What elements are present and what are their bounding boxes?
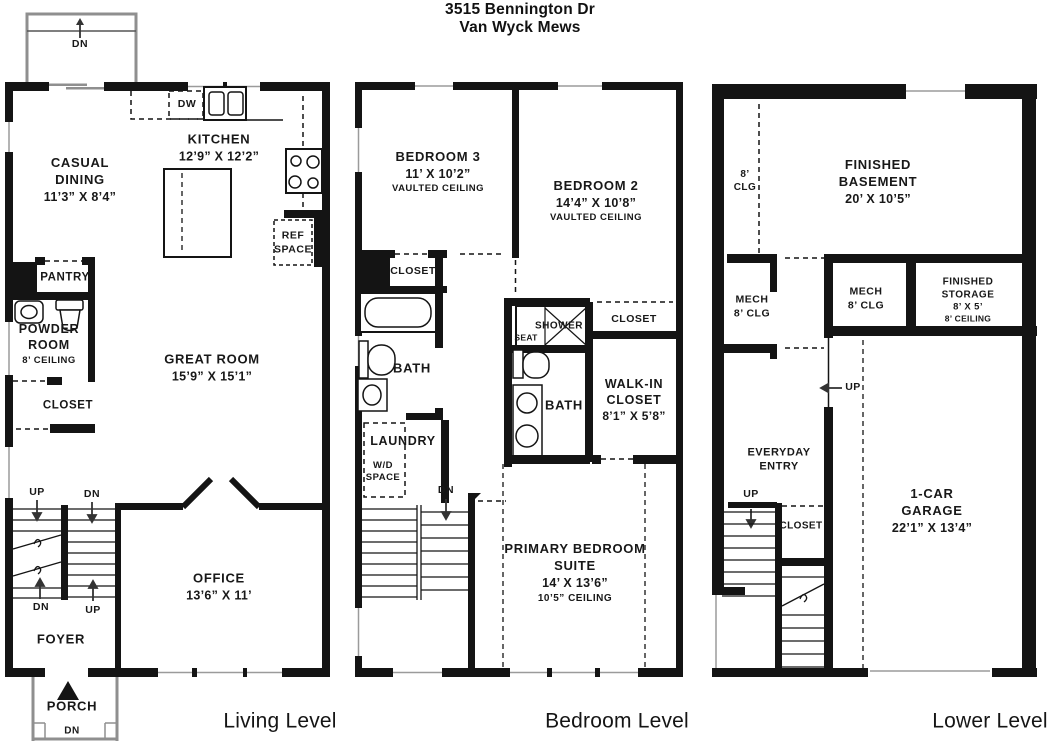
stair-up-label: UP	[743, 488, 759, 502]
dishwasher-label: DW	[178, 98, 197, 112]
room-label-finished-storage: FINISHED STORAGE 8’ X 5’ 8’ CEILING	[932, 275, 1004, 324]
room-label-everyday-entry: EVERYDAY ENTRY	[734, 446, 824, 475]
page-title-line2: Van Wyck Mews	[459, 18, 580, 38]
room-label-primary-suite: PRIMARY BEDROOM SUITE 14’ X 13’6” 10’5” …	[500, 541, 650, 605]
room-label-mech-left: MECH 8’ CLG	[734, 293, 770, 320]
room-label-casual-dining: CASUAL DINING 11’3” X 8’4”	[34, 155, 126, 205]
room-label-bedroom3: BEDROOM 3 11’ X 10’2” VAULTED CEILING	[392, 149, 484, 195]
caption-lower-level: Lower Level	[932, 707, 1047, 734]
hall-up-label: UP	[845, 381, 861, 395]
deck-dn-label: DN	[72, 38, 88, 52]
room-label-closet-bed2: CLOSET	[611, 313, 657, 327]
room-label-walk-in-closet: WALK-IN CLOSET 8’1” X 5’8”	[595, 376, 673, 424]
room-label-bedroom2: BEDROOM 2 14’4” X 10’8” VAULTED CEILING	[550, 178, 642, 224]
wd-space-label: W/D SPACE	[363, 459, 403, 485]
room-label-closet-bed3: CLOSET	[390, 265, 436, 279]
room-label-laundry: LAUNDRY	[370, 433, 436, 449]
porch-dn-label: DN	[64, 725, 79, 738]
room-label-office: OFFICE 13’6” X 11’	[186, 570, 252, 603]
caption-bedroom-level: Bedroom Level	[545, 707, 689, 734]
stair-up-label: UP	[29, 486, 45, 500]
stair-dn-label: DN	[33, 601, 49, 615]
room-label-kitchen: KITCHEN 12’9” X 12’2”	[179, 131, 259, 164]
room-label-mech-mid: MECH 8’ CLG	[848, 285, 884, 312]
stair-up-label: UP	[85, 604, 101, 618]
room-label-great-room: GREAT ROOM 15’9” X 15’1”	[164, 351, 260, 384]
caption-living-level: Living Level	[223, 707, 336, 734]
room-label-closet-lower: CLOSET	[780, 520, 823, 533]
shower-label: SHOWER	[535, 320, 583, 333]
ref-space-label: REF SPACE	[270, 229, 316, 256]
room-label-primary-bath: BATH	[545, 398, 583, 415]
stair-dn-label: DN	[438, 484, 454, 498]
entry-door-marker	[57, 681, 79, 700]
room-label-finished-basement: FINISHED BASEMENT 20’ X 10’5”	[823, 157, 933, 207]
room-label-hall-bath: BATH	[393, 361, 431, 378]
room-label-foyer: FOYER	[37, 632, 85, 649]
stair-dn-label: DN	[84, 488, 100, 502]
room-label-powder-room: POWDER ROOM 8’ CEILING	[14, 321, 84, 367]
ceiling-break-label: 8’ CLG	[731, 168, 759, 194]
floor-plan-drawing	[0, 0, 1063, 745]
room-label-pantry: PANTRY	[40, 271, 90, 286]
floor-plan-page: 3515 Bennington Dr Van Wyck Mews DN CASU…	[0, 0, 1063, 745]
room-label-closet: CLOSET	[43, 399, 93, 414]
room-label-garage: 1-CAR GARAGE 22’1” X 13’4”	[892, 486, 972, 536]
hall-up-arrow	[821, 384, 842, 392]
room-label-porch: PORCH	[47, 699, 97, 716]
seat-label: SEAT	[514, 332, 537, 343]
